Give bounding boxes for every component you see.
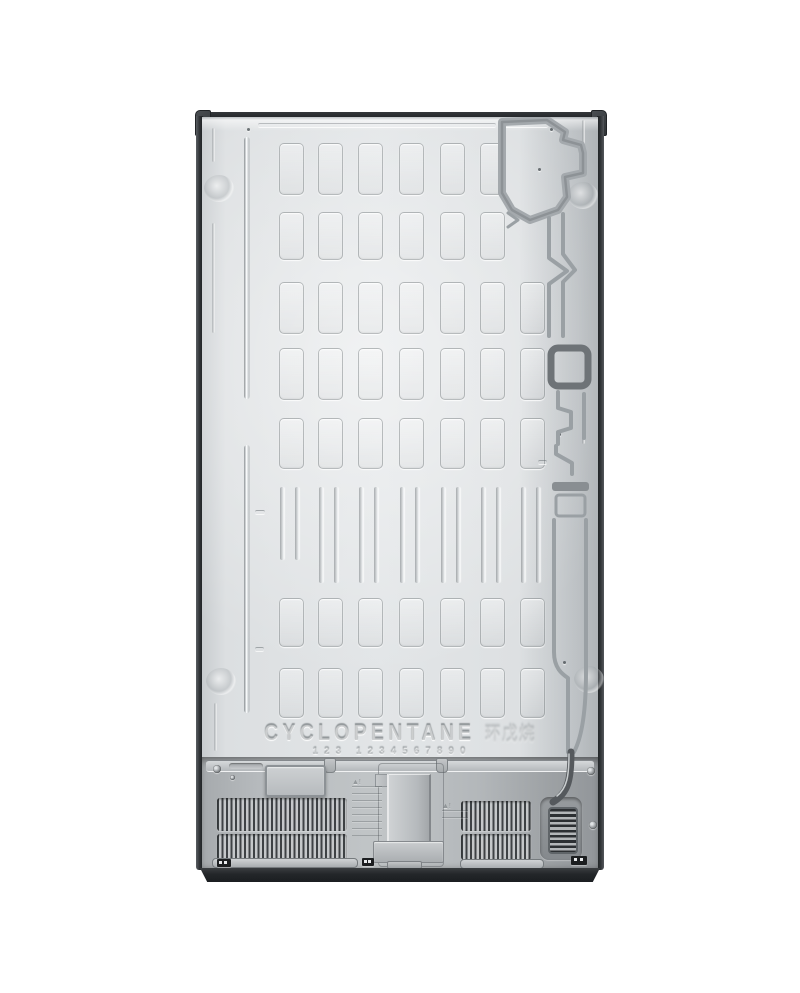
emboss-slot	[456, 487, 460, 583]
emboss-rect	[480, 348, 505, 400]
emboss-rect	[520, 598, 545, 647]
emboss-slot	[441, 487, 445, 583]
emboss-rect	[318, 598, 343, 647]
emboss-rect	[318, 668, 343, 718]
emboss-rect	[358, 282, 383, 334]
emboss-slot	[280, 487, 284, 560]
emboss-slot	[536, 487, 540, 583]
side-vent-grille	[548, 807, 578, 854]
emboss-rect	[440, 282, 465, 334]
junction-box-cover	[265, 765, 326, 797]
emboss-rect	[279, 668, 304, 718]
emboss-slot	[481, 487, 485, 583]
emboss-rect	[440, 348, 465, 400]
emboss-pattern-grid	[202, 117, 598, 757]
product-photo-canvas: CYCLOPENTANE 环戊烷 123 1234567890 ▲!	[0, 0, 800, 993]
vent-grille-left-lower	[217, 834, 347, 860]
screw-hole	[230, 775, 235, 780]
refrigerant-label: CYCLOPENTANE	[264, 719, 475, 745]
cover-plate-base	[373, 841, 444, 863]
emboss-slot	[319, 487, 323, 583]
stamped-circle	[206, 668, 236, 695]
emboss-slot	[415, 487, 419, 583]
stamped-back-sheet: CYCLOPENTANE 环戊烷 123 1234567890	[202, 117, 598, 757]
emboss-rect	[480, 143, 505, 195]
warning-triangle-icon: ▲!	[442, 803, 468, 810]
rivet-dot	[247, 128, 250, 131]
emboss-rect	[480, 598, 505, 647]
embossed-text-lines	[352, 786, 382, 836]
stamped-circle	[204, 175, 234, 202]
emboss-slot	[496, 487, 500, 583]
emboss-rect	[440, 598, 465, 647]
compressor-compartment: ▲! ▲!	[202, 757, 598, 870]
rating-label	[217, 859, 231, 867]
emboss-rect	[358, 418, 383, 469]
emboss-rect	[480, 668, 505, 718]
refrigerant-label-chinese: 环戊烷	[485, 724, 536, 744]
emboss-rect	[440, 668, 465, 718]
emboss-rect	[520, 282, 545, 334]
rivet-dot	[563, 661, 566, 664]
embossed-text-lines	[442, 810, 468, 823]
screw	[589, 821, 597, 829]
emboss-edge-line	[582, 410, 585, 444]
emboss-slot	[359, 487, 363, 583]
refrigerant-marking: CYCLOPENTANE 环戊烷	[232, 719, 569, 746]
emboss-rect	[440, 418, 465, 469]
emboss-edge-line	[212, 128, 215, 162]
emboss-rect	[318, 348, 343, 400]
emboss-rect	[318, 143, 343, 195]
emboss-rect	[358, 598, 383, 647]
emboss-rect	[358, 348, 383, 400]
right-side-edge	[597, 116, 604, 870]
vent-grille-right-lower	[461, 834, 531, 860]
emboss-rect	[399, 668, 424, 718]
emboss-rect	[358, 668, 383, 718]
compartment-bottom-rail-right	[460, 859, 544, 869]
stamped-circle	[574, 666, 604, 693]
emboss-rect	[279, 598, 304, 647]
emboss-rect	[440, 143, 465, 195]
emboss-rib	[244, 137, 250, 399]
emboss-edge-line	[214, 703, 217, 751]
emboss-tick	[255, 647, 264, 652]
embossed-digits: 123 1234567890	[202, 746, 582, 757]
emboss-rect	[279, 282, 304, 334]
emboss-rect	[279, 143, 304, 195]
emboss-rect	[279, 212, 304, 260]
emboss-slot	[521, 487, 525, 583]
vent-grille-left-upper	[217, 798, 347, 831]
emboss-rib	[244, 445, 250, 713]
emboss-rect	[279, 348, 304, 400]
compressor-cover-plate	[387, 774, 431, 846]
emboss-rect	[520, 348, 545, 400]
cover-plate-foot	[387, 861, 422, 869]
warning-triangle-icon: ▲!	[352, 779, 382, 786]
emboss-rect	[358, 143, 383, 195]
emboss-edge-line	[582, 120, 585, 158]
emboss-rect	[358, 212, 383, 260]
emboss-rect	[318, 418, 343, 469]
emboss-rect	[399, 212, 424, 260]
emboss-rect	[318, 212, 343, 260]
emboss-rect	[480, 418, 505, 469]
rating-label	[571, 856, 587, 865]
emboss-rect	[440, 212, 465, 260]
emboss-slot	[295, 487, 299, 560]
emboss-rect	[399, 418, 424, 469]
vent-grille-right-upper	[461, 801, 531, 831]
emboss-slot	[400, 487, 404, 583]
rivet-dot	[558, 433, 561, 436]
emboss-edge-line	[212, 223, 215, 333]
emboss-rect	[399, 282, 424, 334]
embossed-warning-text-right: ▲!	[442, 803, 468, 825]
compartment-bottom-rail-left	[212, 858, 358, 868]
emboss-rect	[318, 282, 343, 334]
embossed-warning-text-left: ▲!	[352, 779, 382, 839]
emboss-rect	[480, 212, 505, 260]
emboss-rect	[279, 418, 304, 469]
emboss-slot	[374, 487, 378, 583]
emboss-rect	[480, 282, 505, 334]
emboss-tick	[255, 510, 265, 515]
emboss-rect	[399, 143, 424, 195]
screw	[213, 765, 221, 773]
emboss-slot	[334, 487, 338, 583]
emboss-rect	[520, 668, 545, 718]
rail-slot	[229, 763, 263, 769]
screw	[587, 767, 595, 775]
rating-label	[362, 858, 374, 866]
rivet-dot	[538, 168, 541, 171]
bottom-edge-trim	[200, 868, 600, 882]
refrigerator-back-view: CYCLOPENTANE 环戊烷 123 1234567890 ▲!	[196, 112, 604, 882]
emboss-rect	[399, 348, 424, 400]
emboss-rect	[399, 598, 424, 647]
emboss-tick	[538, 460, 547, 465]
rivet-dot	[550, 128, 553, 131]
stamped-circle	[568, 182, 598, 209]
